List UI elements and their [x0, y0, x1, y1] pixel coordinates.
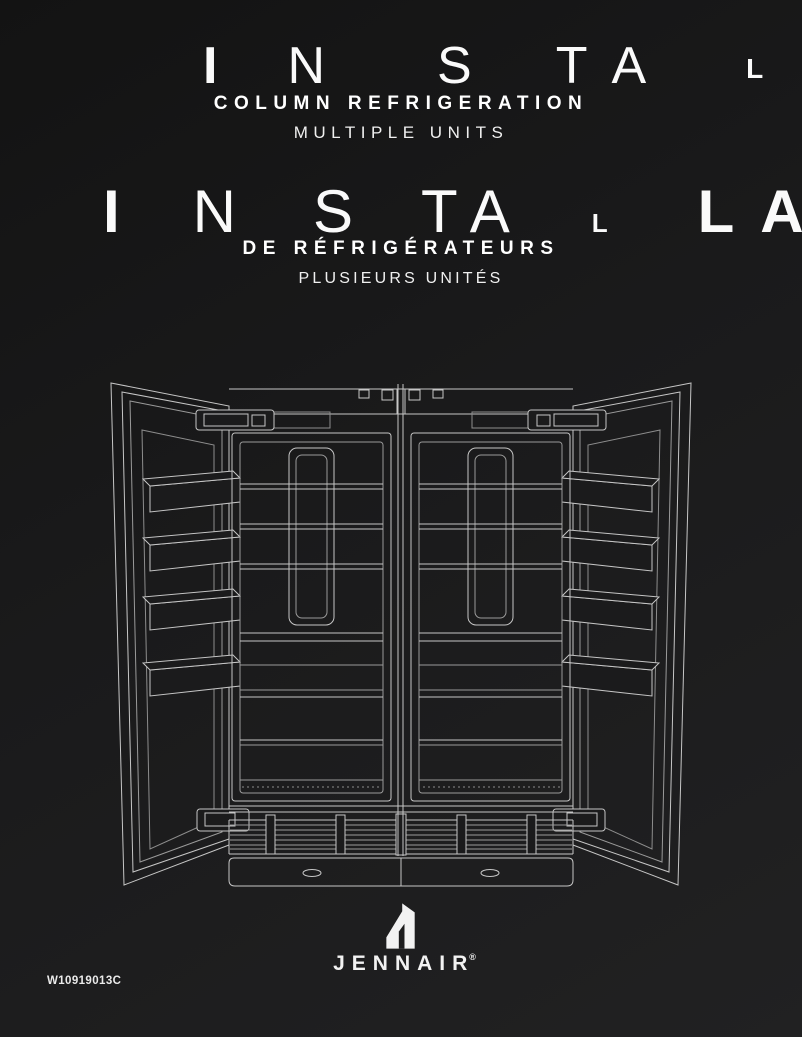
brand-name: JENNAIR [333, 952, 474, 975]
registered-trademark: ® [469, 952, 476, 962]
refrigerator-illustration [0, 0, 802, 1037]
document-number: W10919013C [47, 976, 121, 988]
center-mullion [396, 384, 406, 886]
jennair-logo-mark-icon [384, 903, 418, 949]
brand-wordmark: JENNAIR® [326, 953, 476, 974]
right-refrigerator-column [401, 383, 691, 886]
brand-block: JENNAIR® [326, 903, 476, 974]
left-refrigerator-column [111, 383, 401, 886]
